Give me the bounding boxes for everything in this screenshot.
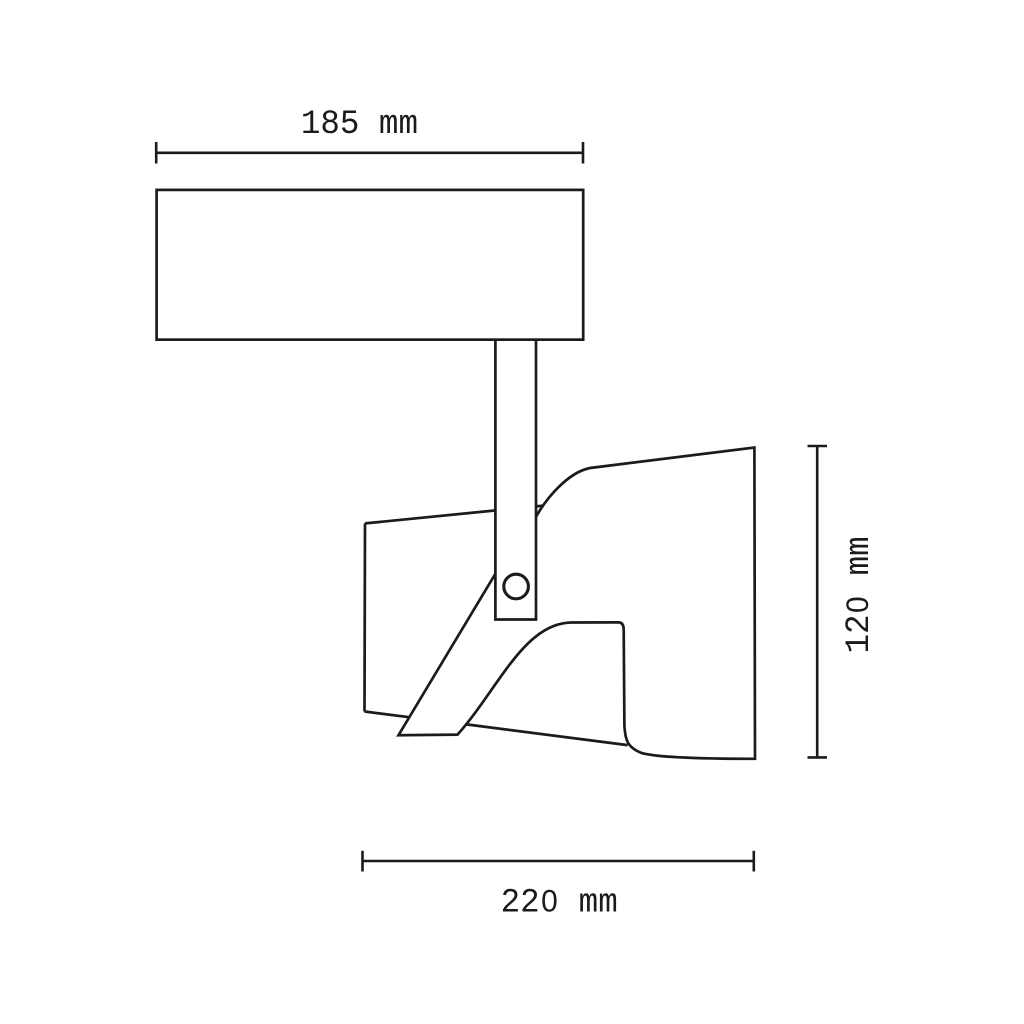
svg-text:185 mm: 185 mm [301,105,418,144]
svg-text:120 mm: 120 mm [839,536,879,653]
svg-text:220 mm: 220 mm [501,883,618,923]
